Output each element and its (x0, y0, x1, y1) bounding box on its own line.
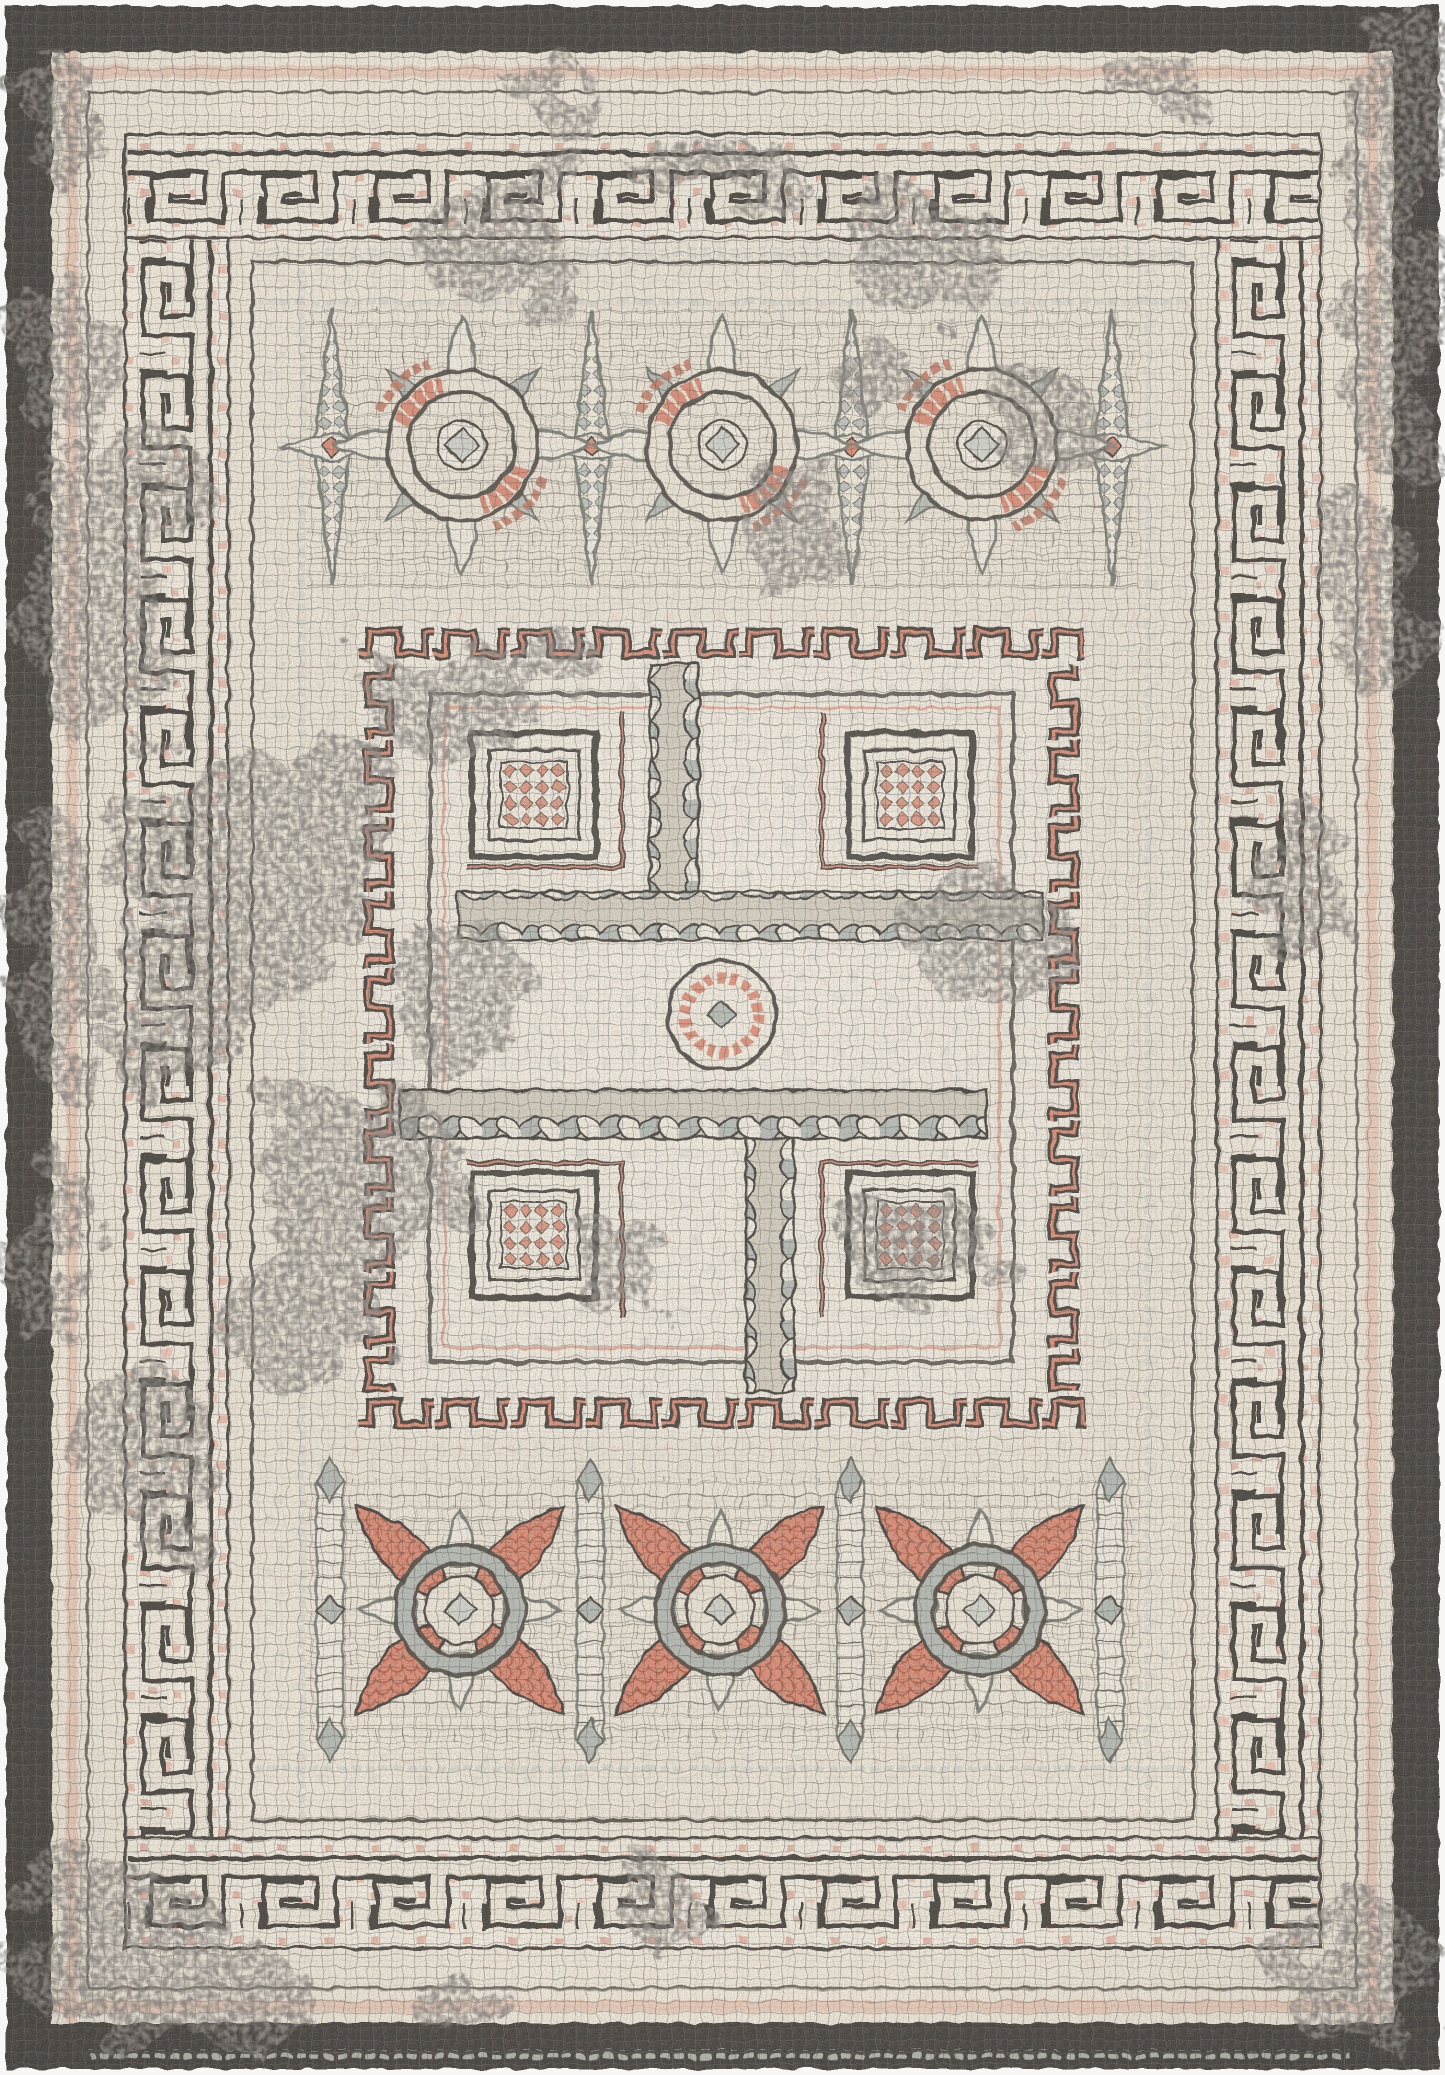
rug (3, 6, 1445, 2069)
rug-product-photo: Product photo: distressed Roman mosaic s… (0, 0, 1445, 2075)
rug-illustration (0, 0, 1445, 2075)
lighting-vignette (6, 6, 1439, 2069)
photo-stage: Product photo: distressed Roman mosaic s… (0, 0, 1445, 2075)
